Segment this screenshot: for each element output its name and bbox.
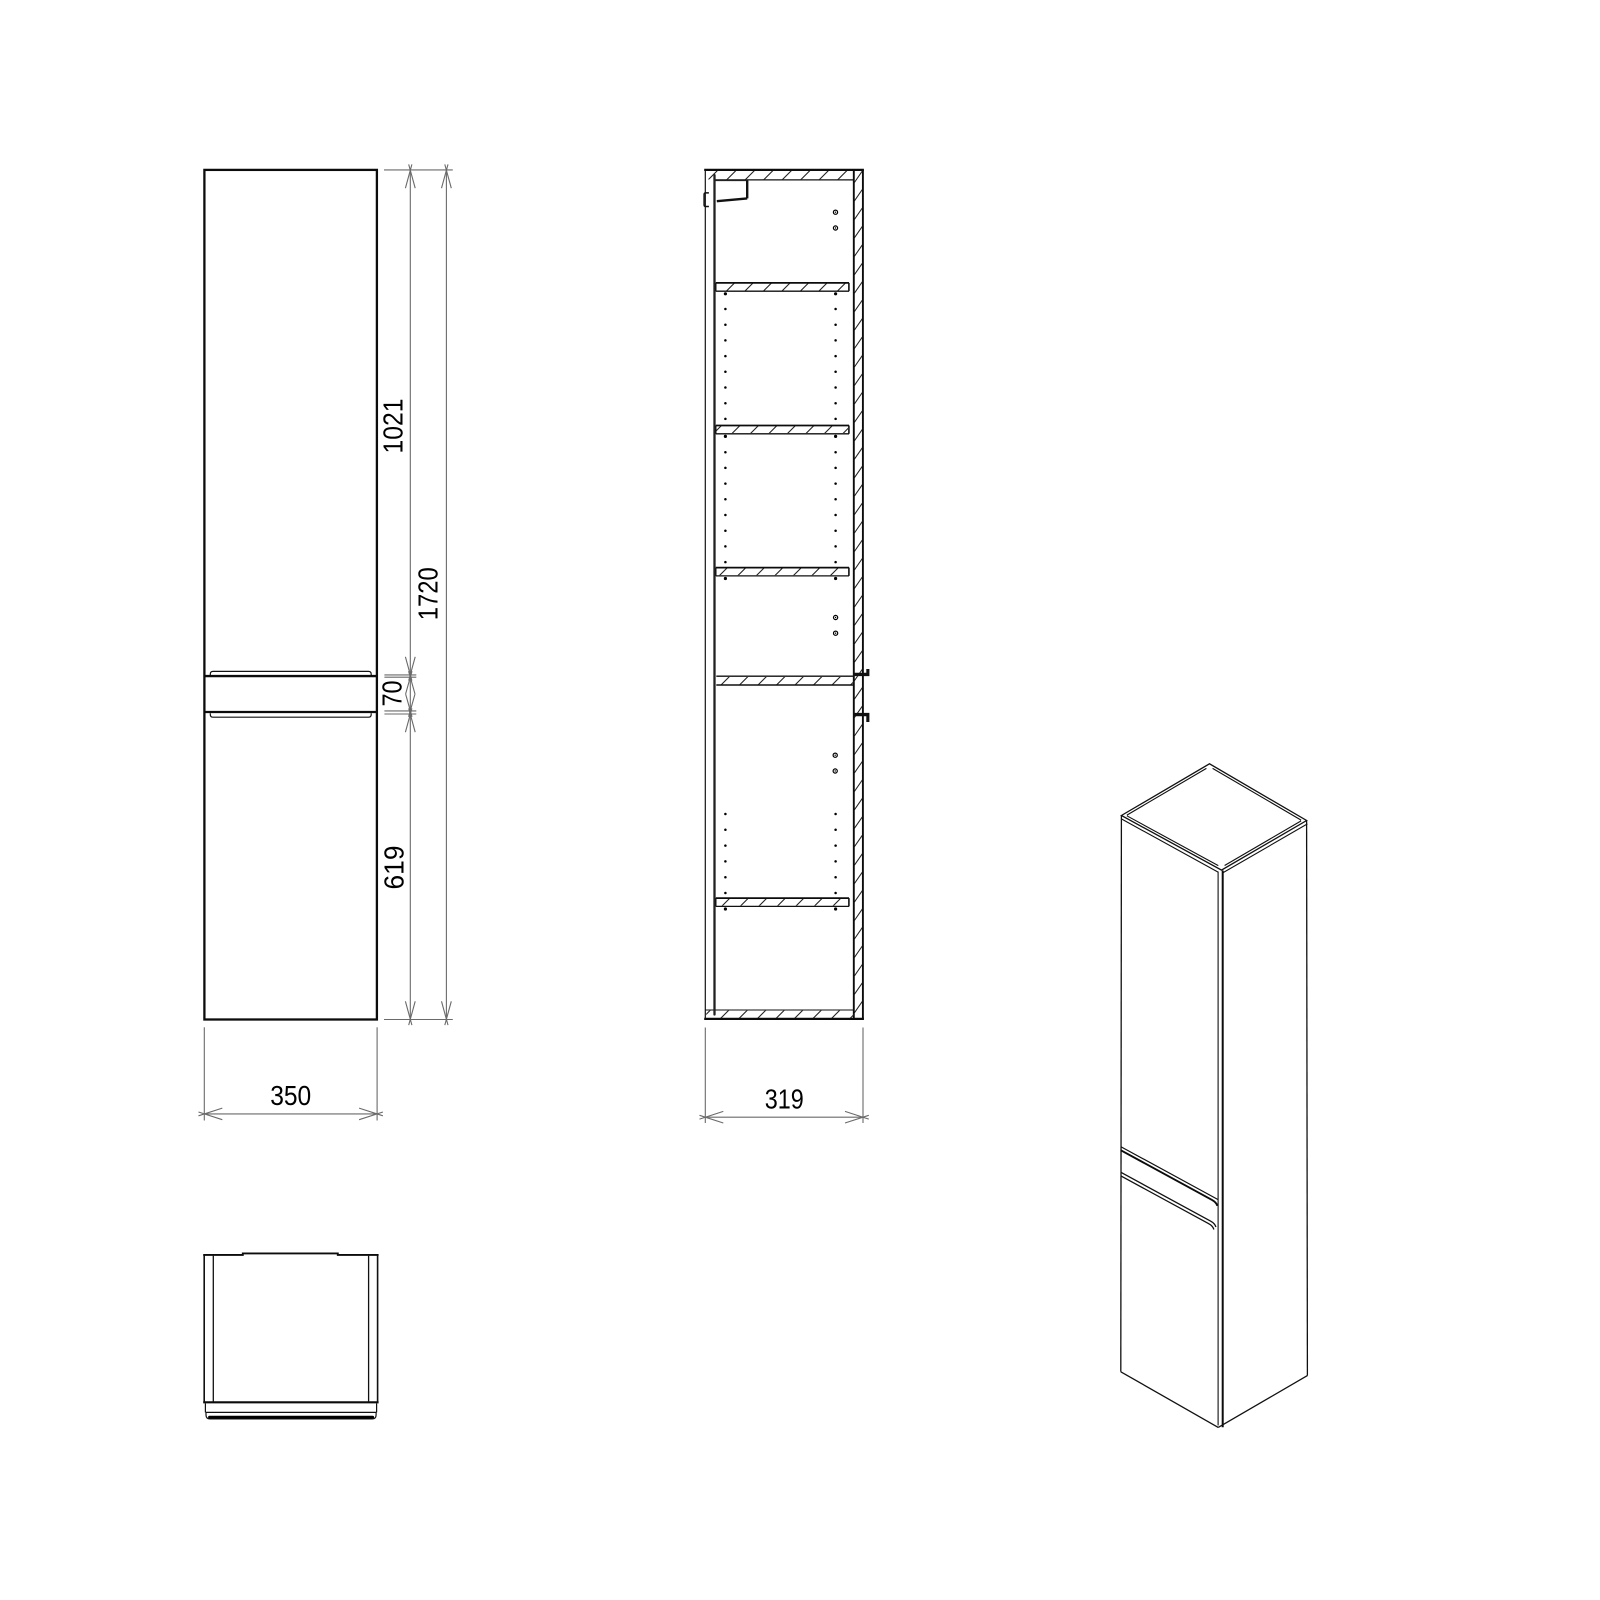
svg-text:70: 70: [377, 681, 408, 707]
svg-text:350: 350: [270, 1080, 311, 1111]
svg-text:1720: 1720: [413, 567, 444, 620]
svg-text:1021: 1021: [378, 399, 409, 454]
svg-text:619: 619: [379, 846, 410, 890]
svg-text:319: 319: [765, 1084, 804, 1115]
